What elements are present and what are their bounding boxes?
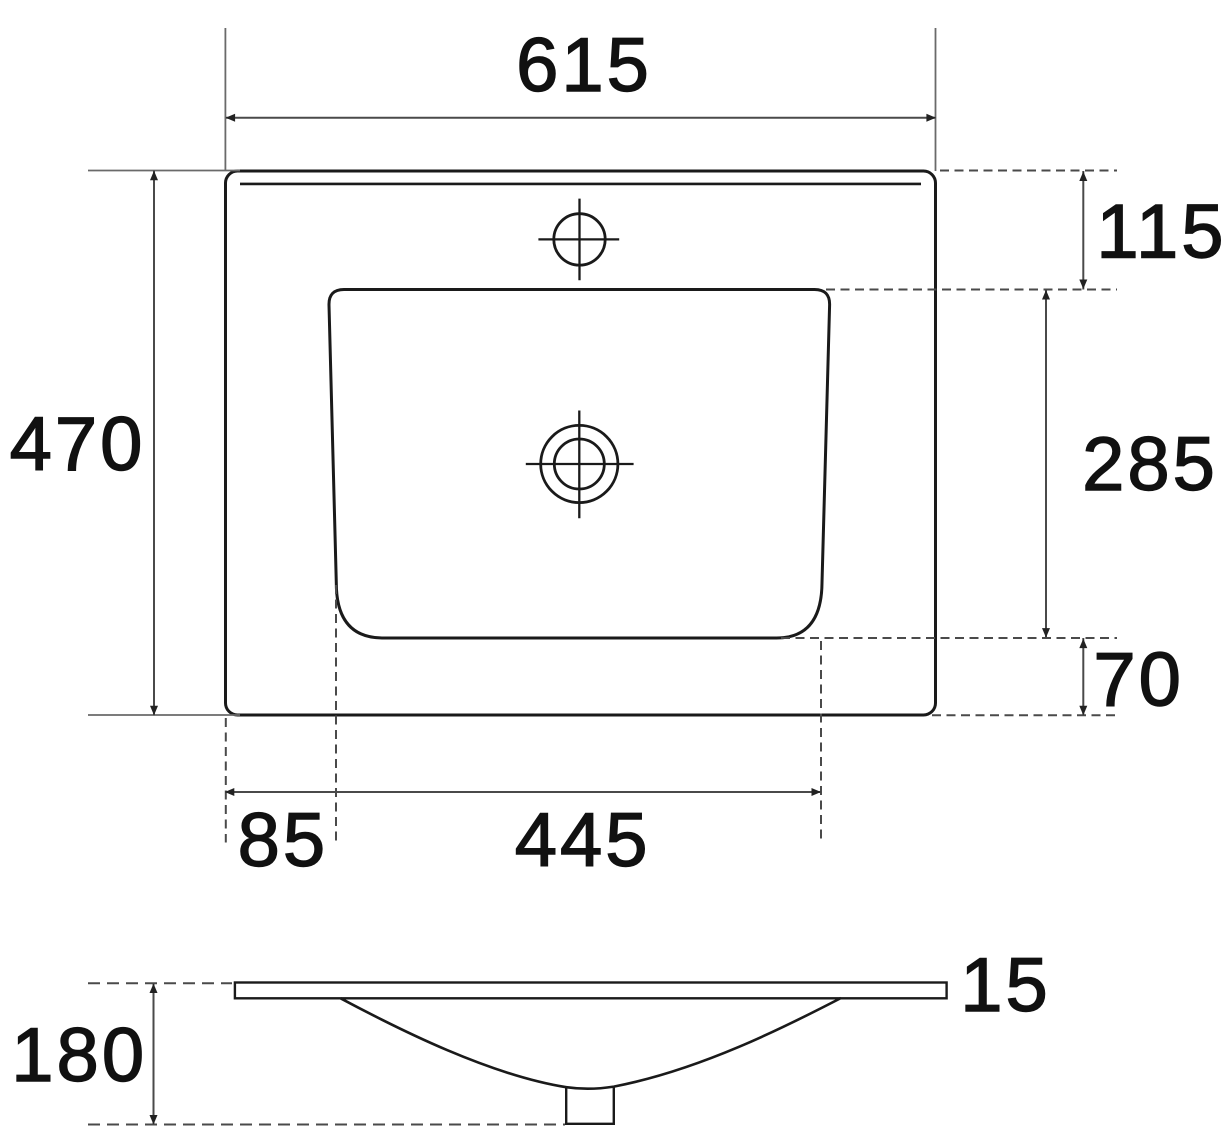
svg-text:115: 115: [1096, 190, 1225, 275]
svg-text:285: 285: [1082, 422, 1218, 507]
svg-text:180: 180: [11, 1013, 147, 1098]
svg-text:470: 470: [10, 402, 146, 487]
svg-text:445: 445: [515, 798, 651, 883]
svg-text:85: 85: [238, 798, 329, 883]
svg-text:70: 70: [1093, 638, 1184, 723]
svg-text:15: 15: [960, 943, 1051, 1028]
svg-text:615: 615: [516, 23, 652, 108]
